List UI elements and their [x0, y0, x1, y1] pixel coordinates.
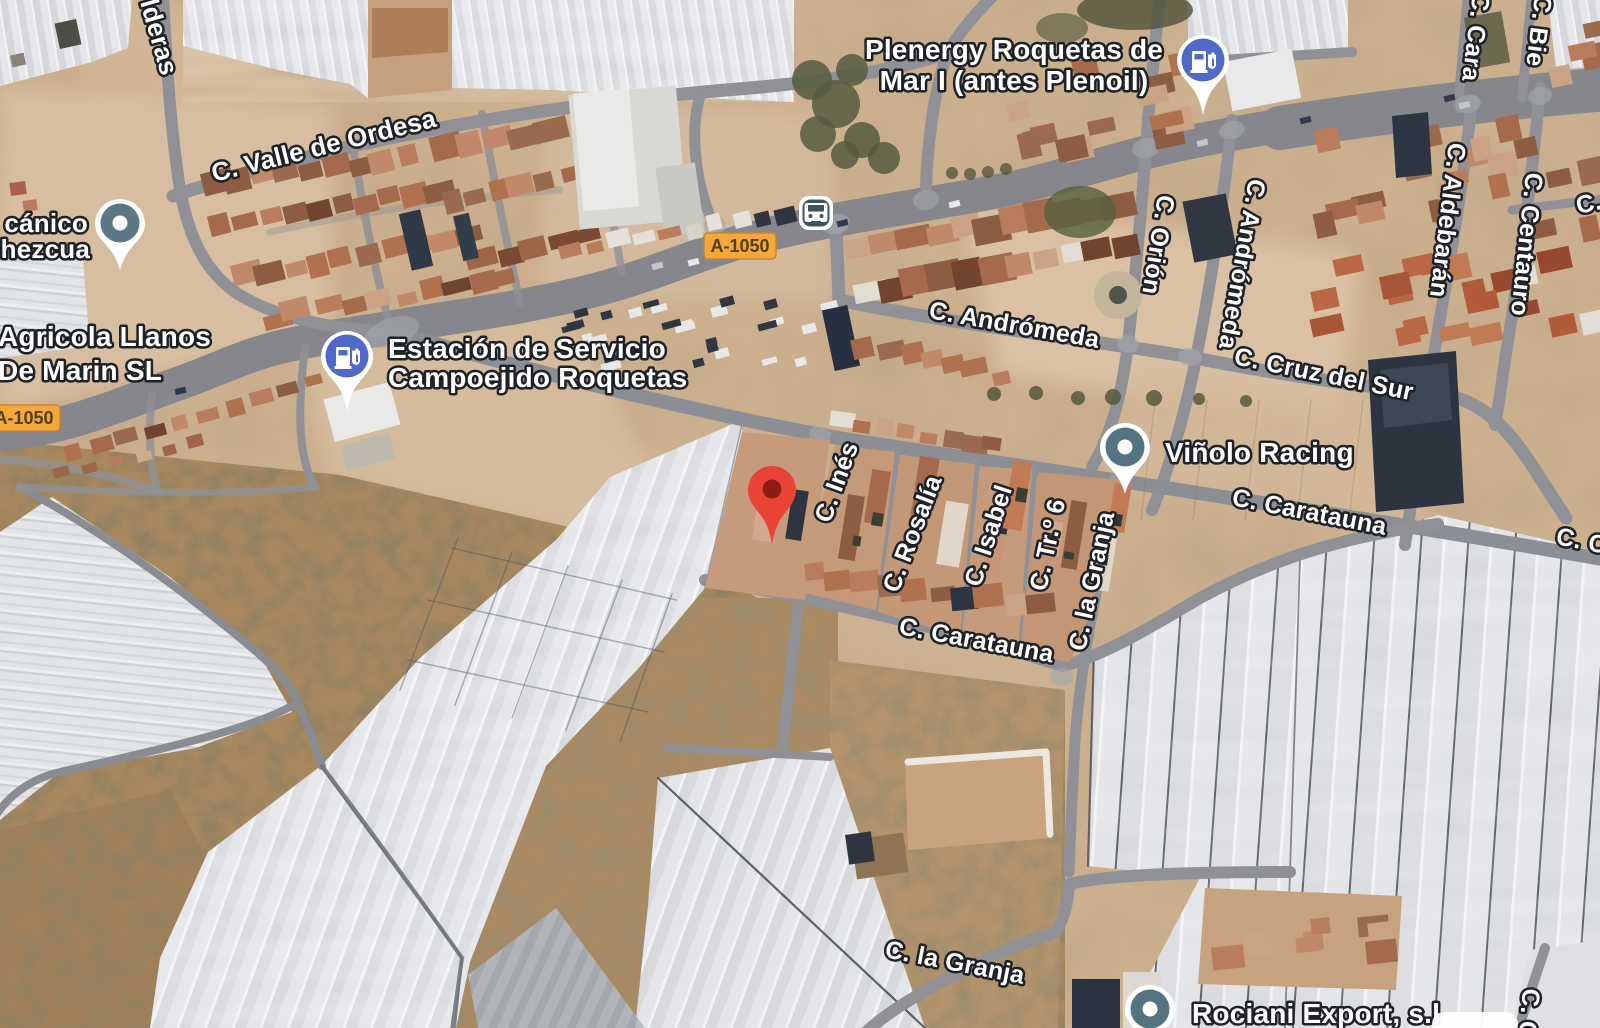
svg-text:hezcua: hezcua — [1, 234, 91, 264]
svg-text:De Marin SL: De Marin SL — [0, 355, 162, 386]
svg-text:A-1050: A-1050 — [710, 236, 769, 256]
svg-text:Mar I (antes Plenoil): Mar I (antes Plenoil) — [880, 65, 1149, 96]
svg-text:Campoejido Roquetas: Campoejido Roquetas — [388, 362, 687, 393]
svg-text:A-1050: A-1050 — [0, 408, 54, 428]
svg-text:Agricola Llanos: Agricola Llanos — [0, 321, 211, 352]
svg-text:Rociani Export, s.l: Rociani Export, s.l — [1192, 998, 1440, 1028]
svg-text:Estación de Servicio: Estación de Servicio — [388, 333, 666, 364]
svg-text:Plenergy Roquetas de: Plenergy Roquetas de — [865, 34, 1163, 65]
svg-text:Viñolo Racing: Viñolo Racing — [1165, 437, 1354, 468]
